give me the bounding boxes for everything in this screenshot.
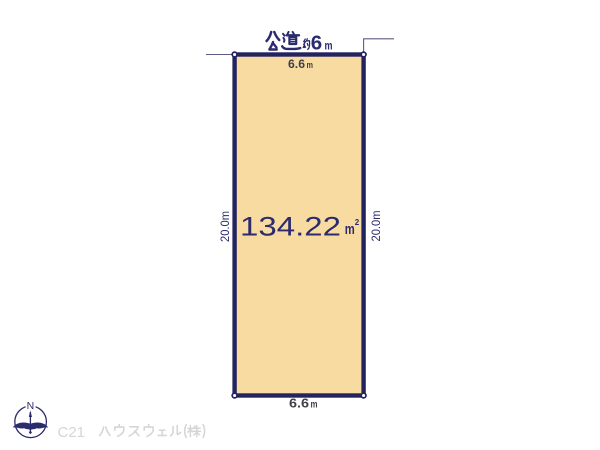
svg-text:N: N <box>27 400 35 412</box>
svg-text:m: m <box>311 400 318 411</box>
svg-text:m: m <box>325 38 333 52</box>
svg-text:6: 6 <box>311 31 322 54</box>
svg-text:134.22: 134.22 <box>240 211 341 241</box>
svg-text:C21: C21 <box>58 424 86 441</box>
svg-text:20.0m: 20.0m <box>218 211 232 242</box>
svg-text:2: 2 <box>355 218 360 227</box>
svg-text:m: m <box>345 221 355 238</box>
svg-text:20.0m: 20.0m <box>369 211 383 242</box>
svg-text:m: m <box>307 60 314 71</box>
svg-text:6.6: 6.6 <box>288 59 305 71</box>
svg-text:6.6: 6.6 <box>289 396 309 411</box>
